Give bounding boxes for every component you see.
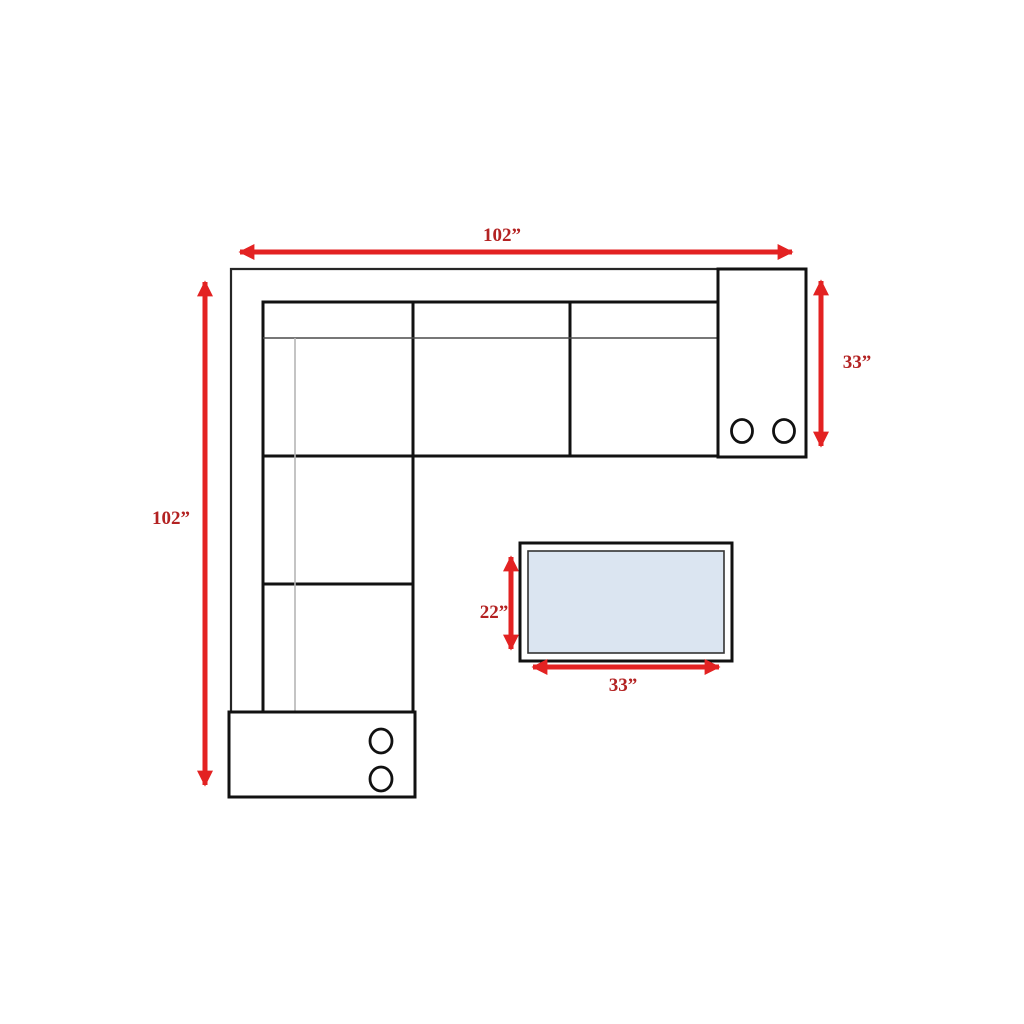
diagram-svg: 102” 102” 33” 22” 33” [0, 0, 1024, 1024]
cupholder-icon [370, 767, 392, 791]
cupholder-icon [370, 729, 392, 753]
sofa-depth-label: 102” [152, 508, 190, 529]
coffee-table [520, 543, 732, 661]
cupholder-icon [774, 420, 795, 443]
floor-plan-diagram: 102” 102” 33” 22” 33” [0, 0, 1024, 1024]
sofa-width-label: 102” [483, 225, 521, 246]
right-console-section [718, 269, 806, 457]
coffee-table-glass-top [528, 551, 724, 653]
right-section-depth-label: 33” [843, 352, 872, 373]
sectional-sofa [229, 269, 806, 797]
cupholder-icon [732, 420, 753, 443]
bottom-console-section [229, 712, 415, 797]
table-depth-label: 22” [480, 602, 509, 623]
table-width-label: 33” [609, 675, 638, 696]
